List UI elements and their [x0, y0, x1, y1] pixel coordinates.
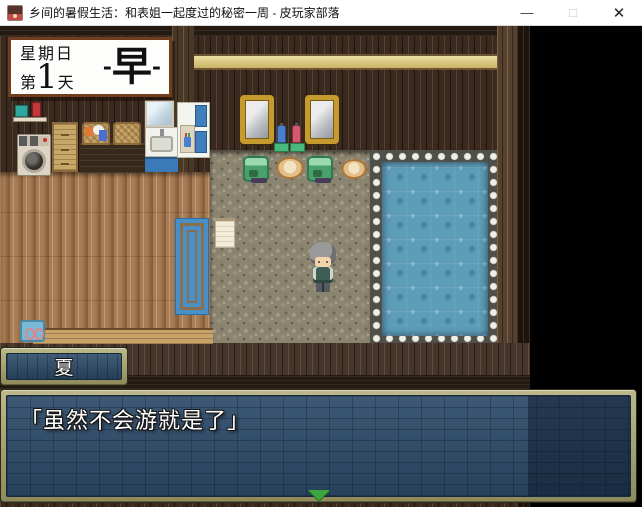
bathroom-cabinet [177, 102, 210, 158]
washer-led [43, 138, 47, 142]
blue-door-mat [175, 218, 209, 315]
date-column: 星期日 第1天 [11, 40, 74, 94]
wooden-basin [276, 157, 304, 179]
game-window: 乡间的暑假生活：和表姐一起度过的秘密一周 - 皮玩家部落 — □ ✕ [0, 0, 642, 507]
shelf-board [13, 117, 47, 122]
wicker-drawers [52, 122, 78, 172]
bottle-stand [274, 143, 289, 152]
dialogue-box[interactable]: 「虽然不会游就是了」 [0, 389, 637, 503]
character-body [313, 267, 333, 283]
wooden-basin [341, 159, 367, 179]
teal-box [15, 105, 28, 117]
pink-shampoo-bottle [292, 125, 301, 143]
window-controls: — □ ✕ [504, 0, 642, 25]
character-face [315, 257, 331, 267]
app-icon [7, 5, 23, 21]
gold-mirror [240, 95, 274, 144]
dark-counter [80, 143, 146, 173]
sink-mirror [145, 100, 174, 127]
speaker-name: 夏 [6, 353, 122, 380]
time-dash: - [152, 54, 161, 80]
character-legs [316, 283, 330, 292]
wash-station [307, 156, 333, 182]
time-dash: - [103, 54, 112, 80]
wall-beam [140, 54, 527, 70]
game-viewport[interactable]: 星期日 第1天 - 早 - 夏 「虽然不会游就是了」 [0, 26, 642, 507]
washing-machine [17, 134, 51, 176]
cabinet-door [195, 131, 207, 153]
sink-base [145, 157, 178, 172]
date-time-hud: 星期日 第1天 - 早 - [8, 37, 172, 97]
wall-shelf [13, 100, 47, 122]
washer-door [22, 149, 46, 173]
blue-basket [20, 320, 45, 342]
speaker-name-box: 夏 [0, 347, 128, 386]
day-prefix: 第 [20, 73, 36, 92]
day-number: 1 [36, 57, 58, 97]
continue-indicator-icon[interactable] [308, 490, 330, 501]
detergent-box [99, 130, 107, 141]
player-character [308, 242, 338, 295]
floor-step [33, 328, 213, 344]
day-suffix: 天 [58, 73, 74, 92]
cabinet-door [195, 105, 207, 127]
sink [145, 127, 178, 157]
minimize-button[interactable]: — [504, 0, 550, 25]
stone-floor [210, 150, 372, 348]
laundry-basket-full [82, 122, 110, 145]
drawer-handle [61, 149, 69, 151]
mat-border [187, 230, 197, 303]
wash-station [243, 156, 269, 182]
sink-basin [150, 136, 173, 152]
dialogue-text: 「虽然不会游就是了」 [6, 395, 631, 443]
title-bar[interactable]: 乡间的暑假生活：和表姐一起度过的秘密一周 - 皮玩家部落 — □ ✕ [0, 0, 642, 26]
bottle-stand [290, 143, 305, 152]
day-label: 第1天 [20, 62, 74, 98]
blue-shampoo-bottle [277, 125, 286, 143]
time-label: 早 [112, 47, 152, 87]
wash-station-base [251, 178, 267, 183]
time-of-day: - 早 - [103, 40, 169, 94]
maximize-button[interactable]: □ [550, 0, 596, 25]
pool-water [382, 162, 488, 336]
laundry-basket-empty [113, 122, 141, 145]
drawer-handle [61, 134, 69, 136]
gold-mirror [305, 95, 339, 144]
close-button[interactable]: ✕ [596, 0, 642, 25]
drawer-handle [61, 163, 69, 165]
wash-station-base [315, 178, 331, 183]
bath-pool [370, 150, 500, 348]
toothbrush-cup [184, 137, 191, 147]
ceiling-beam [0, 26, 530, 36]
window-title: 乡间的暑假生活：和表姐一起度过的秘密一周 - 皮玩家部落 [29, 4, 340, 21]
red-bottle [32, 102, 41, 117]
towel [215, 218, 235, 248]
